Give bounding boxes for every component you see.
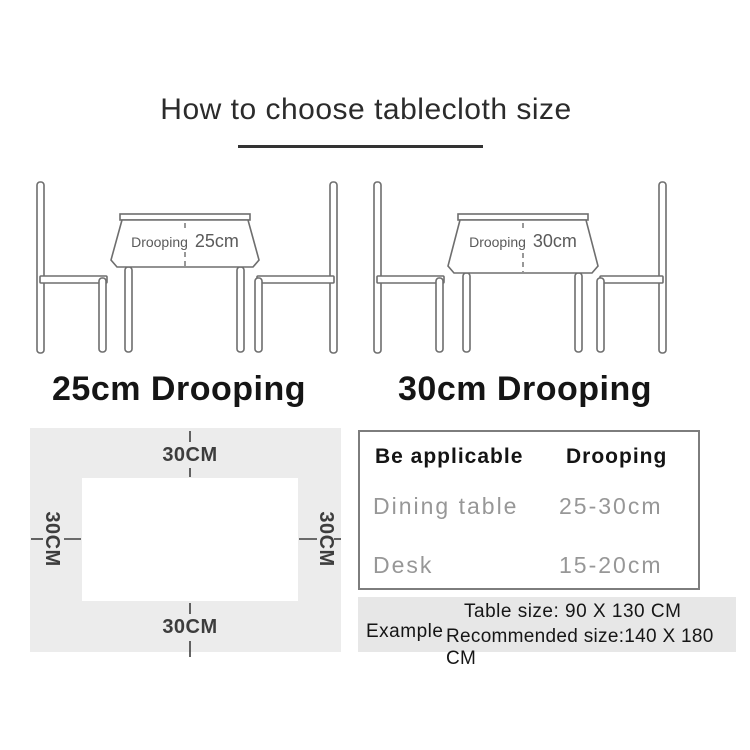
title-underline: [238, 145, 483, 148]
caption-25cm-drooping: 25cm Drooping: [29, 370, 329, 409]
spec-row-dining-value: 25-30cm: [559, 493, 662, 520]
table-legs-icon: [463, 273, 582, 352]
droop-word: Drooping: [131, 234, 188, 250]
caption-30cm-drooping: 30cm Drooping: [375, 370, 675, 409]
page-title: How to choose tablecloth size: [0, 93, 732, 127]
example-label: Example: [366, 621, 443, 643]
table-diagram-25cm: Drooping25cm: [18, 178, 363, 356]
tablecloth-size-infographic: How to choose tablecloth size: [0, 0, 750, 750]
table-legs-icon: [125, 267, 244, 352]
spec-row-desk-label: Desk: [373, 552, 433, 579]
example-recommended-size: Recommended size:140 X 180 CM: [446, 626, 736, 670]
spec-row-desk-value: 15-20cm: [559, 552, 662, 579]
measure-right: 30CM: [315, 511, 337, 566]
tabletop-area: [82, 478, 298, 601]
example-box: Example Table size: 90 X 130 CM Recommen…: [358, 597, 736, 652]
spec-header-applicable: Be applicable: [375, 445, 523, 469]
chair-left-icon: [374, 182, 444, 353]
droop-value: 25cm: [195, 231, 239, 251]
overhang-size-panel: 30CM 30CM 30CM 30CM: [30, 428, 341, 660]
spec-row-dining-label: Dining table: [373, 493, 518, 520]
droop-annotation: Drooping25cm: [131, 231, 239, 251]
chair-right-icon: [255, 182, 337, 353]
droop-value: 30cm: [533, 231, 577, 251]
measure-bottom: 30CM: [162, 616, 217, 638]
measure-top: 30CM: [162, 444, 217, 466]
chair-left-icon: [37, 182, 107, 353]
drooping-spec-table: Be applicable Drooping Dining table 25-3…: [358, 430, 700, 590]
table-diagram-30cm: Drooping30cm: [366, 178, 674, 356]
example-table-size: Table size: 90 X 130 CM: [464, 601, 681, 623]
measure-left: 30CM: [41, 511, 63, 566]
droop-word: Drooping: [469, 234, 526, 250]
chair-right-icon: [597, 182, 666, 353]
spec-header-drooping: Drooping: [566, 445, 667, 469]
droop-annotation: Drooping30cm: [469, 231, 577, 251]
